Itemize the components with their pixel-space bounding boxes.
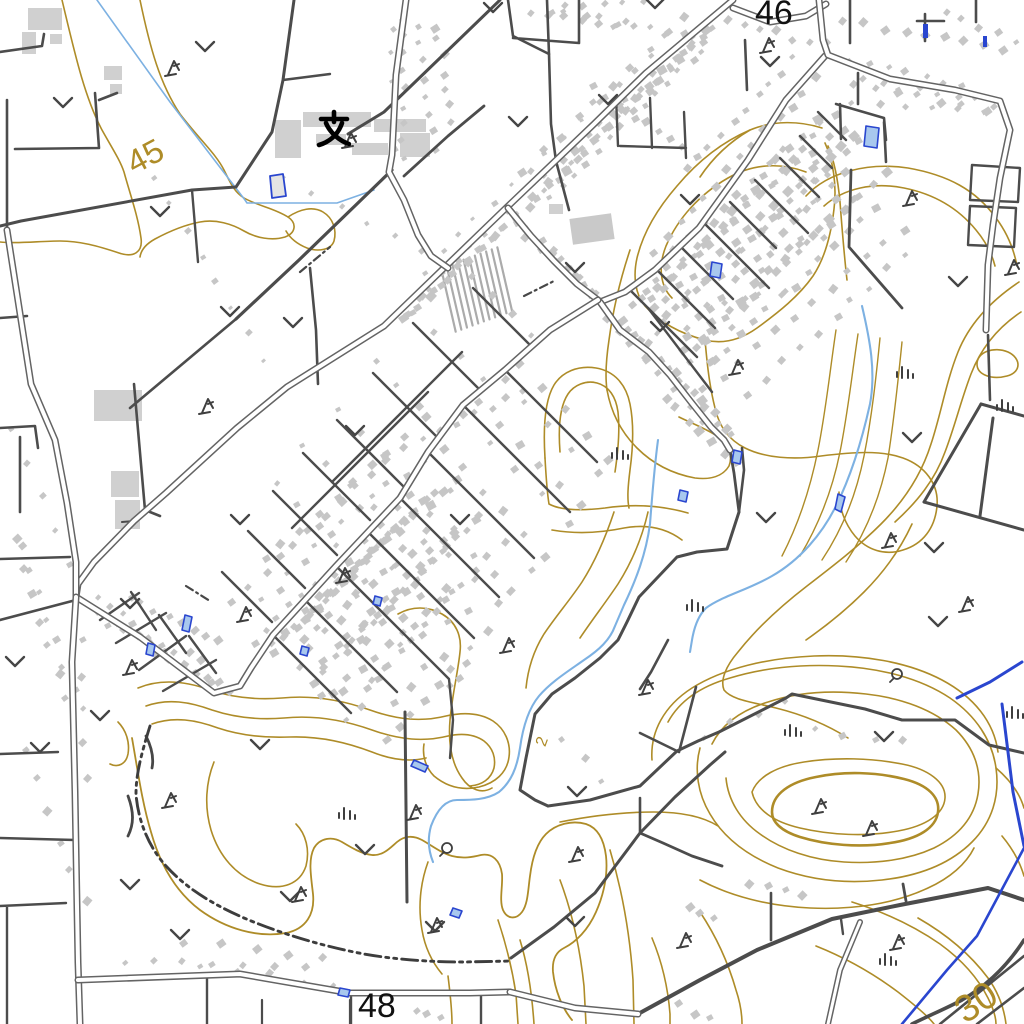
svg-text:46: 46: [755, 0, 793, 32]
svg-text:48: 48: [358, 987, 396, 1024]
